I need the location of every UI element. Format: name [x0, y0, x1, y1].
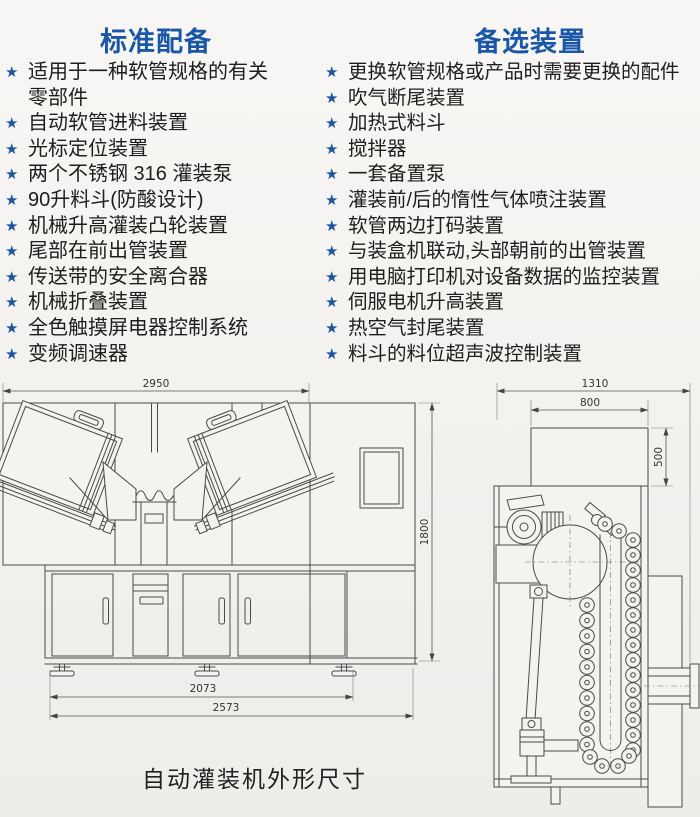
machine-foot: [332, 664, 356, 676]
item-text: 变频调速器: [28, 342, 280, 368]
item-text: 更换软管规格或产品时需要更换的配件: [348, 60, 680, 86]
list-item: ★传送带的安全离合器: [5, 265, 305, 291]
item-text: 用电脑打印机对设备数据的监控装置: [348, 265, 660, 291]
item-text: 吹气断尾装置: [348, 86, 465, 112]
list-item: ★全色触摸屏电器控制系统: [5, 316, 305, 342]
star-icon: ★: [325, 86, 348, 112]
list-item: ★90升料斗(防酸设计): [5, 188, 305, 214]
item-text: 搅拌器: [348, 137, 407, 163]
item-text: 全色触摸屏电器控制系统: [28, 316, 280, 342]
star-icon: ★: [325, 188, 348, 214]
dim-label-top-width-overall: 1310: [582, 378, 609, 390]
item-text: 软管两边打码装置: [348, 214, 504, 240]
item-text: 尾部在前出管装置: [28, 239, 280, 265]
machine-foot: [195, 664, 219, 676]
star-icon: ★: [325, 111, 348, 137]
optional-column-title: 备选装置: [474, 20, 586, 59]
item-text: 90升料斗(防酸设计): [28, 188, 280, 214]
star-icon: ★: [325, 60, 348, 86]
star-icon: ★: [5, 316, 28, 342]
dim-label-hopper-depth: 500: [653, 447, 665, 467]
item-text: 加热式料斗: [348, 111, 446, 137]
item-text: 机械升高灌装凸轮装置: [28, 214, 280, 240]
list-item: ★加热式料斗: [325, 111, 697, 137]
dim-label-front-height: 1800: [419, 519, 431, 546]
dim-label-front-width-inner: 2073: [190, 683, 217, 695]
item-text: 料斗的料位超声波控制装置: [348, 342, 582, 368]
list-item: ★机械升高灌装凸轮装置: [5, 214, 305, 240]
list-item: ★软管两边打码装置: [325, 214, 697, 240]
star-icon: ★: [5, 265, 28, 291]
list-item: ★变频调速器: [5, 342, 305, 368]
star-icon: ★: [325, 137, 348, 163]
dim-label-hopper-width: 800: [580, 397, 600, 409]
star-icon: ★: [5, 162, 28, 188]
item-text: 与装盒机联动,头部朝前的出管装置: [348, 239, 646, 265]
list-item: ★光标定位装置: [5, 137, 305, 163]
list-item: ★两个不锈钢 316 灌装泵: [5, 162, 305, 188]
outline-dimension-diagram: 2950: [0, 375, 700, 817]
front-view-drawing: 2950: [0, 378, 440, 720]
item-text: 自动软管进料装置: [28, 111, 280, 137]
list-item: ★料斗的料位超声波控制装置: [325, 342, 697, 368]
machine-foot: [50, 664, 74, 676]
top-view-drawing: 1310 800 500: [494, 378, 700, 807]
star-icon: ★: [5, 290, 28, 316]
list-item: ★伺服电机升高装置: [325, 290, 697, 316]
item-text: 伺服电机升高装置: [348, 290, 504, 316]
star-icon: ★: [325, 265, 348, 291]
item-text: 传送带的安全离合器: [28, 265, 280, 291]
diagram-caption: 自动灌装机外形尺寸: [142, 760, 367, 794]
list-item: ★热空气封尾装置: [325, 316, 697, 342]
star-icon: ★: [5, 188, 28, 214]
star-icon: ★: [325, 162, 348, 188]
item-text: 一套备置泵: [348, 162, 446, 188]
list-item: ★搅拌器: [325, 137, 697, 163]
item-text: 光标定位装置: [28, 137, 280, 163]
star-icon: ★: [325, 342, 348, 368]
star-icon: ★: [325, 239, 348, 265]
standard-feature-list: ★适用于一种软管规格的有关零部件 ★自动软管进料装置 ★光标定位装置 ★两个不锈…: [5, 60, 305, 367]
star-icon: ★: [325, 316, 348, 342]
list-item: ★尾部在前出管装置: [5, 239, 305, 265]
item-text: 灌装前/后的惰性气体喷注装置: [348, 188, 607, 214]
list-item: ★适用于一种软管规格的有关零部件: [5, 60, 305, 111]
item-text: 机械折叠装置: [28, 290, 280, 316]
star-icon: ★: [5, 239, 28, 265]
item-text: 适用于一种软管规格的有关零部件: [28, 60, 280, 111]
list-item: ★吹气断尾装置: [325, 86, 697, 112]
hopper-footprint: [531, 428, 648, 486]
star-icon: ★: [5, 342, 28, 368]
star-icon: ★: [5, 137, 28, 163]
list-item: ★灌装前/后的惰性气体喷注装置: [325, 188, 697, 214]
star-icon: ★: [5, 214, 28, 240]
list-item: ★用电脑打印机对设备数据的监控装置: [325, 265, 697, 291]
list-item: ★更换软管规格或产品时需要更换的配件: [325, 60, 697, 86]
item-text: 热空气封尾装置: [348, 316, 485, 342]
list-item: ★自动软管进料装置: [5, 111, 305, 137]
star-icon: ★: [5, 111, 28, 137]
standard-column-title: 标准配备: [100, 20, 212, 59]
star-icon: ★: [325, 290, 348, 316]
dim-label-front-width-top: 2950: [143, 378, 170, 390]
star-icon: ★: [5, 60, 28, 86]
list-item: ★机械折叠装置: [5, 290, 305, 316]
dim-label-front-width-overall: 2573: [213, 702, 240, 714]
brochure-page: 标准配备 备选装置 ★适用于一种软管规格的有关零部件 ★自动软管进料装置 ★光标…: [0, 0, 700, 817]
list-item: ★一套备置泵: [325, 162, 697, 188]
list-item: ★与装盒机联动,头部朝前的出管装置: [325, 239, 697, 265]
star-icon: ★: [325, 214, 348, 240]
optional-feature-list: ★更换软管规格或产品时需要更换的配件 ★吹气断尾装置 ★加热式料斗 ★搅拌器 ★…: [325, 60, 697, 367]
item-text: 两个不锈钢 316 灌装泵: [28, 162, 280, 188]
